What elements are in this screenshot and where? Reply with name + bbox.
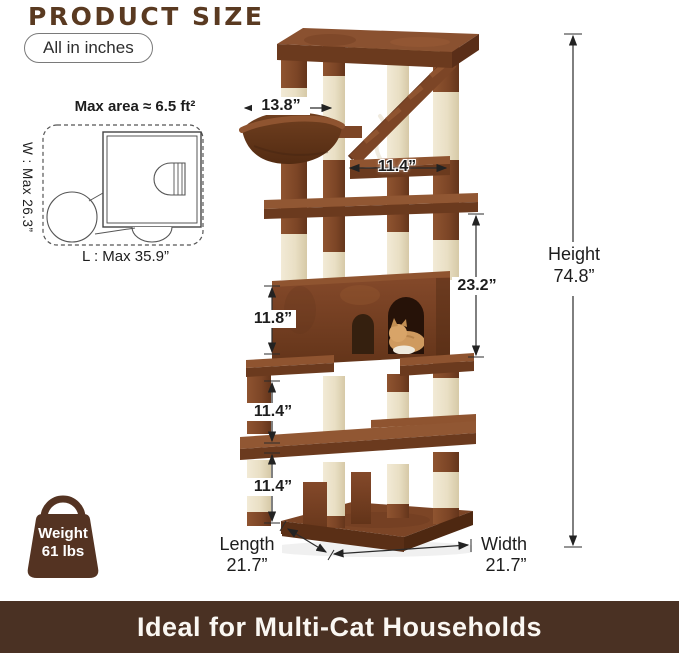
dim-lower-section-height: 11.4”: [246, 478, 300, 496]
product-size-infographic: Weight 61 lbs PRODUCT SIZE All in inches…: [0, 0, 679, 653]
footprint-width-label: W : Max 26.3”: [20, 142, 35, 233]
length-arrow: [280, 521, 334, 560]
weight-value: 61 lbs: [24, 543, 102, 560]
dim-upper-section-height: 23.2”: [452, 277, 502, 295]
unit-badge: All in inches: [24, 33, 153, 63]
length-label: Length: [212, 534, 282, 554]
height-value: 74.8”: [536, 266, 612, 286]
dim-top-perch-width: 11.4”: [368, 158, 426, 176]
footprint-title: Max area ≈ 6.5 ft²: [45, 98, 225, 115]
width-arrow: [334, 539, 471, 554]
weight-label: Weight: [24, 525, 102, 542]
banner: Ideal for Multi-Cat Households: [0, 601, 679, 653]
length-value: 21.7”: [212, 555, 282, 575]
page-title: PRODUCT SIZE: [28, 2, 265, 31]
height-label: Height: [536, 244, 612, 264]
footprint-length-label: L : Max 35.9”: [58, 248, 193, 265]
width-label: Width: [472, 534, 536, 554]
height-arrow: [564, 34, 582, 547]
banner-text: Ideal for Multi-Cat Households: [137, 612, 542, 643]
dim-hammock-width: 13.8”: [252, 97, 310, 115]
dim-middle-section-height: 11.4”: [246, 403, 300, 421]
width-value: 21.7”: [476, 555, 536, 575]
dim-condo-height: 11.8”: [250, 310, 296, 328]
